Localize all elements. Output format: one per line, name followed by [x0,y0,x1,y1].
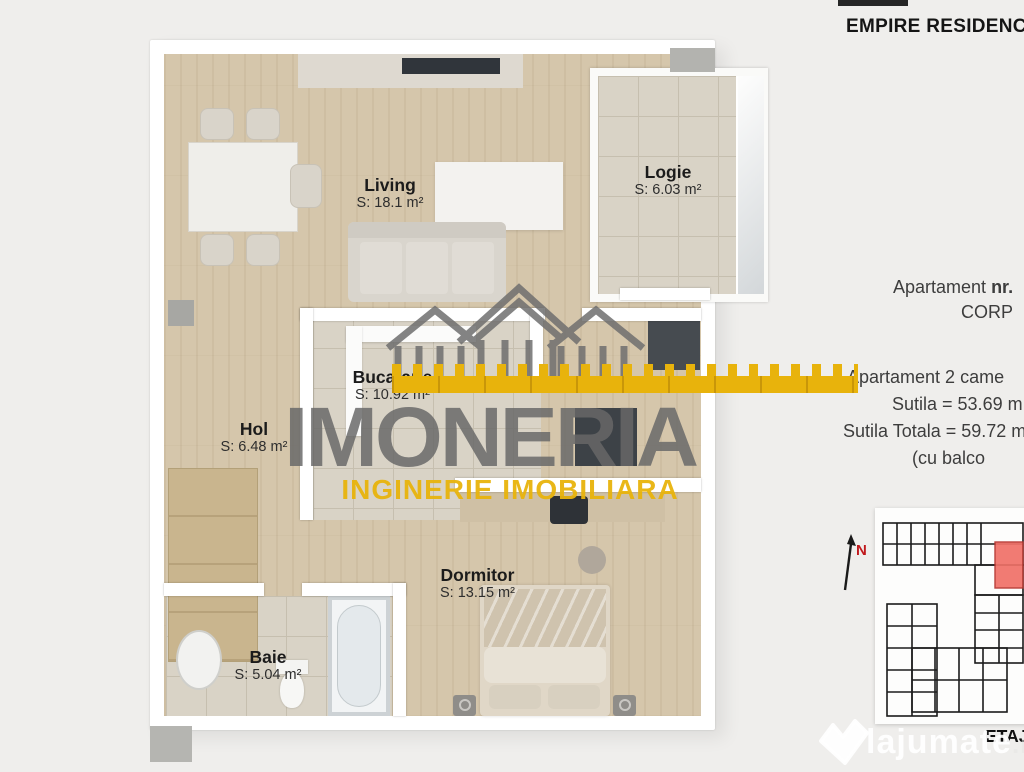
nightstand [613,695,636,716]
logie-top-pillar [670,48,715,72]
room-area: S: 6.03 m² [612,182,724,199]
north-label: N [856,542,867,559]
top-edge-artifact [838,0,908,6]
bathtub [328,596,390,716]
detail-line: Apartament 2 came [847,367,1004,388]
sideboard [435,162,563,230]
heart-icon [815,715,871,767]
dining-table [188,142,298,232]
apartment-number-line: Apartament nr. [893,277,1013,298]
room-label-bucatarie: Bucatarie S: 10.92 m² [320,368,465,404]
dining-chair [200,108,234,140]
detail-line: (cu balco [912,448,985,469]
pillow [548,685,600,709]
wall-bathroom-top-a [164,583,264,596]
room-label-dormitor: Dormitor S: 13.15 m² [405,566,550,602]
room-label-logie: Logie S: 6.03 m² [612,163,724,199]
detail-line: Sutila = 53.69 m [892,394,1023,415]
sofa-cushion [406,242,448,294]
apartment-prefix: Apartament [893,277,991,297]
site-name: lajumate [866,723,1012,761]
room-area: S: 18.1 m² [330,195,450,212]
corp-label: CORP [961,302,1013,323]
wall-kitchen-stub [530,308,543,380]
room-area: S: 6.48 m² [198,439,310,456]
exterior-mat [150,726,192,762]
room-area: S: 5.04 m² [212,667,324,684]
sofa-cushion [360,242,402,294]
wall-living-kitchen [300,308,545,321]
desk-chair [550,496,588,524]
dining-chair [246,234,280,266]
listing-screenshot: { "page": { "background": "#efeeec" }, "… [0,0,1024,768]
apartment-nr: nr. [991,277,1013,297]
room-name: Logie [612,163,724,182]
dining-chair [246,108,280,140]
bathtub-basin [337,605,381,707]
sofa-cushion [452,242,494,294]
room-area: S: 10.92 m² [320,387,465,404]
entry-mat [168,300,194,326]
room-name: Living [330,176,450,195]
bed-duvet [484,647,606,683]
logie-door-sill [620,288,710,300]
wall-bathroom-top-b [302,583,406,596]
siteplan-drawing [875,508,1024,724]
kitchen-counter [346,326,476,342]
wall-hall-kitchen [300,308,313,520]
room-name: Baie [212,648,324,667]
bed [480,585,610,716]
project-title: EMPIRE RESIDENC [846,16,1024,38]
room-name: Bucatarie [320,368,465,387]
dining-chair [200,234,234,266]
room-area: S: 13.15 m² [405,585,550,602]
detail-line: Sutila Totala = 59.72 m [843,421,1024,442]
dining-chair [290,164,322,208]
hall-wardrobe [168,468,258,662]
room-name: Dormitor [405,566,550,585]
nightstand [453,695,476,716]
lajumate-watermark: lajumate.ro [866,723,1024,762]
lajumate-heart-icon [815,715,871,767]
room-label-hol: Hol S: 6.48 m² [198,420,310,456]
sofa [348,222,506,302]
wall-bedroom-top [455,478,701,492]
highlighted-unit [995,542,1023,588]
room-label-living: Living S: 18.1 m² [330,176,450,212]
kitchen-appliance [575,408,637,466]
site-domain: .ro [1012,729,1024,759]
wall-living-corridor [582,308,701,321]
sofa-back [348,222,506,238]
room-label-baie: Baie S: 5.04 m² [212,648,324,684]
room-name: Hol [198,420,310,439]
pillow [489,685,541,709]
pouf [578,546,606,574]
north-arrow-icon: N [838,532,870,592]
siteplan-card [875,508,1024,724]
tv [402,58,500,74]
wall-bathroom-bedroom [393,583,406,716]
compass: N [838,532,870,592]
logie-glass-railing [736,76,764,294]
